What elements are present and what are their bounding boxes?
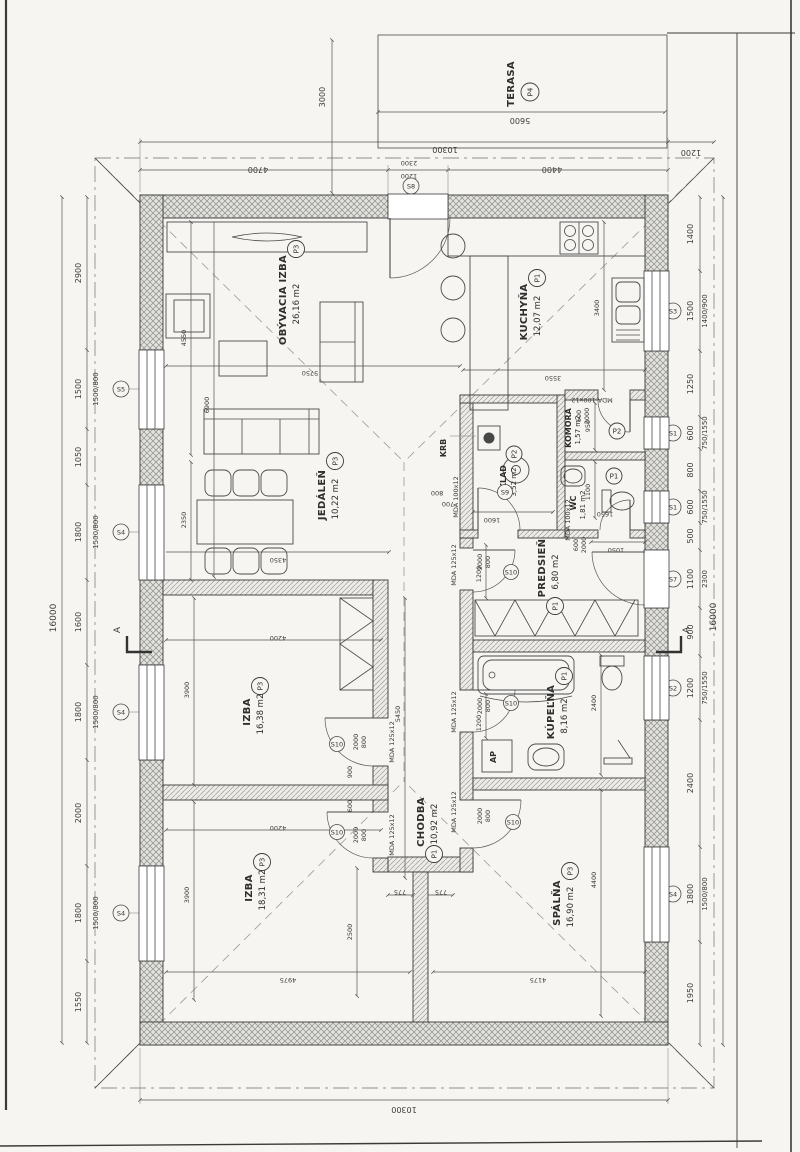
- svg-text:IZBA: IZBA: [244, 874, 255, 902]
- svg-text:MDA 100x12: MDA 100x12: [452, 476, 460, 518]
- svg-text:2500: 2500: [346, 924, 354, 941]
- svg-text:3400: 3400: [593, 300, 601, 317]
- room-label-terasa: TERASA P4: [506, 61, 539, 107]
- window-s4-izba1: [139, 665, 164, 760]
- window-mark: S1: [669, 504, 677, 512]
- svg-text:900: 900: [346, 766, 354, 778]
- door-mark: S7: [669, 576, 677, 584]
- top-overall-dim: 10300: [432, 145, 457, 154]
- svg-text:4975: 4975: [280, 976, 297, 984]
- svg-text:KUCHYŇA: KUCHYŇA: [517, 284, 530, 341]
- terrace-depth-dim: 3000: [318, 87, 327, 107]
- window-size-label: 1500/800: [92, 515, 100, 549]
- svg-text:800: 800: [360, 829, 368, 841]
- terrace-tag: P4: [527, 87, 535, 96]
- dining-table: [197, 500, 293, 544]
- sideboard: [167, 222, 367, 252]
- room-label-kuchyna: KUCHYŇA P1 12,07 m2: [517, 270, 546, 341]
- svg-text:P3: P3: [293, 245, 301, 254]
- left-chain-dim: 1050: [74, 447, 83, 467]
- window-size-label: 1400/900: [701, 294, 709, 328]
- svg-text:S9: S9: [501, 489, 509, 497]
- sofa-3seat: [204, 409, 319, 454]
- svg-text:IZBA: IZBA: [242, 698, 253, 726]
- svg-text:4350: 4350: [270, 556, 287, 564]
- sofa-2seat: [320, 302, 363, 382]
- svg-text:12,07 m2: 12,07 m2: [533, 296, 543, 337]
- svg-text:2000: 2000: [352, 827, 360, 844]
- washbasin-kupelna: [528, 744, 564, 770]
- svg-text:10,22 m2: 10,22 m2: [331, 479, 341, 520]
- window-mark: S5: [117, 386, 125, 394]
- toilet-wc: [602, 490, 634, 512]
- svg-text:775: 775: [394, 888, 406, 896]
- svg-text:P1: P1: [534, 274, 542, 283]
- svg-text:16,90 m2: 16,90 m2: [566, 887, 576, 928]
- window-size-label: 1500/800: [701, 877, 709, 911]
- left-chain-dim: 1600: [74, 612, 83, 632]
- svg-text:1050: 1050: [608, 546, 625, 554]
- svg-text:1600: 1600: [484, 516, 501, 524]
- svg-text:MDA 100x12: MDA 100x12: [571, 396, 613, 404]
- furniture: [166, 218, 645, 772]
- svg-text:1100: 1100: [584, 484, 592, 501]
- fireplace: [478, 426, 500, 450]
- window-mark: S4: [117, 709, 125, 717]
- top-overhang-dim: 1200: [681, 148, 701, 157]
- svg-text:600: 600: [346, 800, 354, 812]
- svg-text:6,80 m2: 6,80 m2: [551, 554, 561, 589]
- svg-text:MDA 100x12: MDA 100x12: [564, 499, 572, 541]
- svg-text:6900: 6900: [203, 397, 211, 414]
- towel-radiator: [604, 740, 632, 764]
- svg-text:775: 775: [435, 888, 447, 896]
- svg-text:5450: 5450: [394, 706, 402, 723]
- right-chain-dim: 500: [686, 528, 695, 543]
- window-size-label: 750/1550: [701, 671, 709, 705]
- svg-text:2350: 2350: [180, 512, 188, 529]
- top-right-dim: 4400: [542, 165, 562, 174]
- floorplan-drawing: 5600 3000 TERASA P4 10300 1200 4700 2300…: [0, 0, 800, 1152]
- svg-text:1650: 1650: [597, 510, 614, 518]
- washing-machine-label: AP: [489, 751, 498, 763]
- left-chain-dim: 1800: [74, 522, 83, 542]
- svg-text:3550: 3550: [545, 374, 562, 382]
- svg-text:PREDSIEŇ: PREDSIEŇ: [535, 539, 548, 598]
- svg-text:3900: 3900: [183, 887, 191, 904]
- right-chain-dim: 600: [686, 499, 695, 514]
- entry-door-mark: S8: [407, 183, 415, 191]
- svg-text:S10: S10: [331, 829, 343, 837]
- svg-text:4175: 4175: [530, 976, 547, 984]
- svg-text:800: 800: [484, 810, 492, 822]
- left-chain-dim: 1800: [74, 702, 83, 722]
- svg-text:2000: 2000: [580, 537, 588, 554]
- svg-text:800: 800: [360, 736, 368, 748]
- floorplan-page: 5600 3000 TERASA P4 10300 1200 4700 2300…: [0, 0, 800, 1152]
- svg-text:4200: 4200: [270, 824, 287, 832]
- left-chain-dim: 2900: [74, 263, 83, 283]
- back-door-opening: [644, 550, 669, 608]
- svg-text:16,38 m2: 16,38 m2: [256, 694, 266, 735]
- svg-text:S10: S10: [331, 741, 343, 749]
- washbasin-wc: [561, 466, 585, 486]
- wc-tag: P1: [610, 473, 619, 481]
- svg-text:18,31 m2: 18,31 m2: [258, 870, 268, 911]
- svg-text:MDA 125x12: MDA 125x12: [450, 544, 458, 586]
- svg-text:P2: P2: [511, 450, 519, 459]
- right-overall-dim: 16000: [709, 602, 719, 631]
- svg-text:3900: 3900: [183, 682, 191, 699]
- room-label-obyvacia: OBÝVACIA IZBA P3 26,16 m2: [276, 241, 305, 346]
- bar-stools: [441, 234, 465, 342]
- svg-text:2000: 2000: [476, 698, 484, 715]
- svg-text:S10: S10: [505, 569, 517, 577]
- svg-text:P3: P3: [257, 682, 265, 691]
- window-mark: S2: [669, 685, 677, 693]
- svg-text:MDA 125x12: MDA 125x12: [450, 791, 458, 833]
- section-mark-right: A: [682, 626, 692, 633]
- right-chain-dim: 1500: [686, 301, 695, 321]
- entry-door-opening: [388, 194, 448, 219]
- svg-text:800: 800: [484, 556, 492, 568]
- window-s1-komora: [644, 417, 669, 449]
- left-chain-dim: 1500: [74, 379, 83, 399]
- window-s2-kupelna: [644, 656, 669, 720]
- right-chain-dim: 1800: [686, 884, 695, 904]
- svg-text:2400: 2400: [590, 695, 598, 712]
- svg-text:600: 600: [575, 410, 583, 422]
- svg-text:600: 600: [572, 539, 580, 551]
- window-size-label: 1500/800: [92, 372, 100, 406]
- window-s5: [139, 350, 164, 429]
- window-size-label: 1500/800: [92, 695, 100, 729]
- room-label-izba1: IZBA P3 16,38 m2: [242, 678, 269, 735]
- svg-text:800: 800: [431, 489, 443, 497]
- fireplace-label: KRB: [439, 439, 448, 457]
- left-chain-dim: 1550: [74, 992, 83, 1012]
- coffee-table: [219, 341, 267, 376]
- windows: [139, 194, 669, 961]
- svg-text:JEDÁLEŇ: JEDÁLEŇ: [315, 470, 328, 521]
- svg-text:4200: 4200: [270, 634, 287, 642]
- svg-text:P1: P1: [561, 672, 569, 681]
- window-s4-jedalen: [139, 485, 164, 580]
- svg-text:KÚPEĽŇA: KÚPEĽŇA: [544, 685, 557, 739]
- window-s4-izba2: [139, 866, 164, 961]
- svg-text:2000: 2000: [476, 554, 484, 571]
- window-size-label: 1500/800: [92, 896, 100, 930]
- top-left-dim: 4700: [248, 165, 268, 174]
- window-s4-spalna: [644, 847, 669, 942]
- window-size-label: 750/1550: [701, 490, 709, 524]
- window-s1-wc: [644, 491, 669, 523]
- svg-text:P1: P1: [431, 850, 439, 859]
- room-label-izba2: IZBA P3 18,31 m2: [244, 854, 271, 911]
- cooktop: [560, 222, 598, 254]
- entry-door-height: 2300: [401, 159, 418, 167]
- room-label-spalna: SPÁLŇA P3 16,90 m2: [550, 863, 579, 928]
- window-mark: S3: [669, 308, 677, 316]
- komora-tag: P2: [613, 428, 622, 436]
- back-door: [592, 552, 645, 605]
- right-chain-dim: 2400: [686, 773, 695, 793]
- right-chain-dim: 1950: [686, 983, 695, 1003]
- toilet-kupelna: [600, 656, 624, 690]
- terrace-width-dim: 5600: [510, 116, 530, 125]
- svg-text:4550: 4550: [180, 330, 188, 347]
- section-mark-left: A: [113, 626, 123, 633]
- window-s3-kuchyna: [644, 271, 669, 351]
- svg-text:OBÝVACIA IZBA: OBÝVACIA IZBA: [276, 255, 289, 345]
- right-chain-dim: 1200: [686, 678, 695, 698]
- svg-text:800: 800: [484, 700, 492, 712]
- room-label-jedalen: JEDÁLEŇ P3 10,22 m2: [315, 453, 344, 522]
- terrace: 5600 3000 TERASA P4: [318, 35, 667, 193]
- armchair: [166, 294, 210, 338]
- svg-text:KOMORA: KOMORA: [564, 407, 573, 448]
- svg-text:P3: P3: [259, 858, 267, 867]
- right-chain-dim: 1400: [686, 224, 695, 244]
- window-mark: S4: [117, 529, 125, 537]
- svg-text:SPÁLŇA: SPÁLŇA: [550, 880, 563, 926]
- svg-text:MDA 125x12: MDA 125x12: [388, 721, 396, 763]
- svg-text:S10: S10: [505, 700, 517, 708]
- svg-text:MDA 125x12: MDA 125x12: [450, 691, 458, 733]
- svg-text:26,16 m2: 26,16 m2: [292, 284, 302, 325]
- svg-text:10,92 m2: 10,92 m2: [430, 804, 440, 845]
- svg-text:8,16 m2: 8,16 m2: [560, 698, 570, 733]
- svg-text:2000: 2000: [352, 734, 360, 751]
- svg-text:P1: P1: [552, 602, 560, 611]
- svg-text:4400: 4400: [590, 872, 598, 889]
- terrace-label: TERASA: [506, 61, 517, 107]
- window-mark: S1: [669, 430, 677, 438]
- svg-text:1200: 1200: [475, 715, 483, 732]
- svg-text:S10: S10: [507, 819, 519, 827]
- right-chain-dim: 1100: [686, 569, 695, 589]
- right-chain-dim: 600: [686, 425, 695, 440]
- svg-text:P3: P3: [567, 867, 575, 876]
- right-chain-dim: 800: [686, 462, 695, 477]
- room-label-chodba: CHODBA P1 10,92 m2: [416, 797, 443, 862]
- svg-text:P3: P3: [332, 457, 340, 466]
- window-mark: S4: [669, 891, 677, 899]
- left-overall-dim: 16000: [49, 603, 59, 632]
- kitchen-sink: [612, 278, 644, 342]
- window-size-label: 750/1550: [701, 416, 709, 450]
- door-size-label: 2300: [701, 570, 709, 588]
- svg-text:CHODBA: CHODBA: [416, 797, 427, 847]
- wardrobe-izba1: [340, 598, 373, 690]
- left-chain-dim: 2000: [74, 803, 83, 823]
- svg-text:5750: 5750: [302, 369, 319, 377]
- svg-text:MDA 125x12: MDA 125x12: [388, 814, 396, 856]
- bottom-overall-dim: 10300: [391, 1105, 416, 1114]
- svg-text:2000: 2000: [476, 808, 484, 825]
- right-chain-dim: 1250: [686, 374, 695, 394]
- svg-text:2000: 2000: [583, 408, 591, 425]
- left-chain-dim: 1800: [74, 903, 83, 923]
- window-mark: S4: [117, 910, 125, 918]
